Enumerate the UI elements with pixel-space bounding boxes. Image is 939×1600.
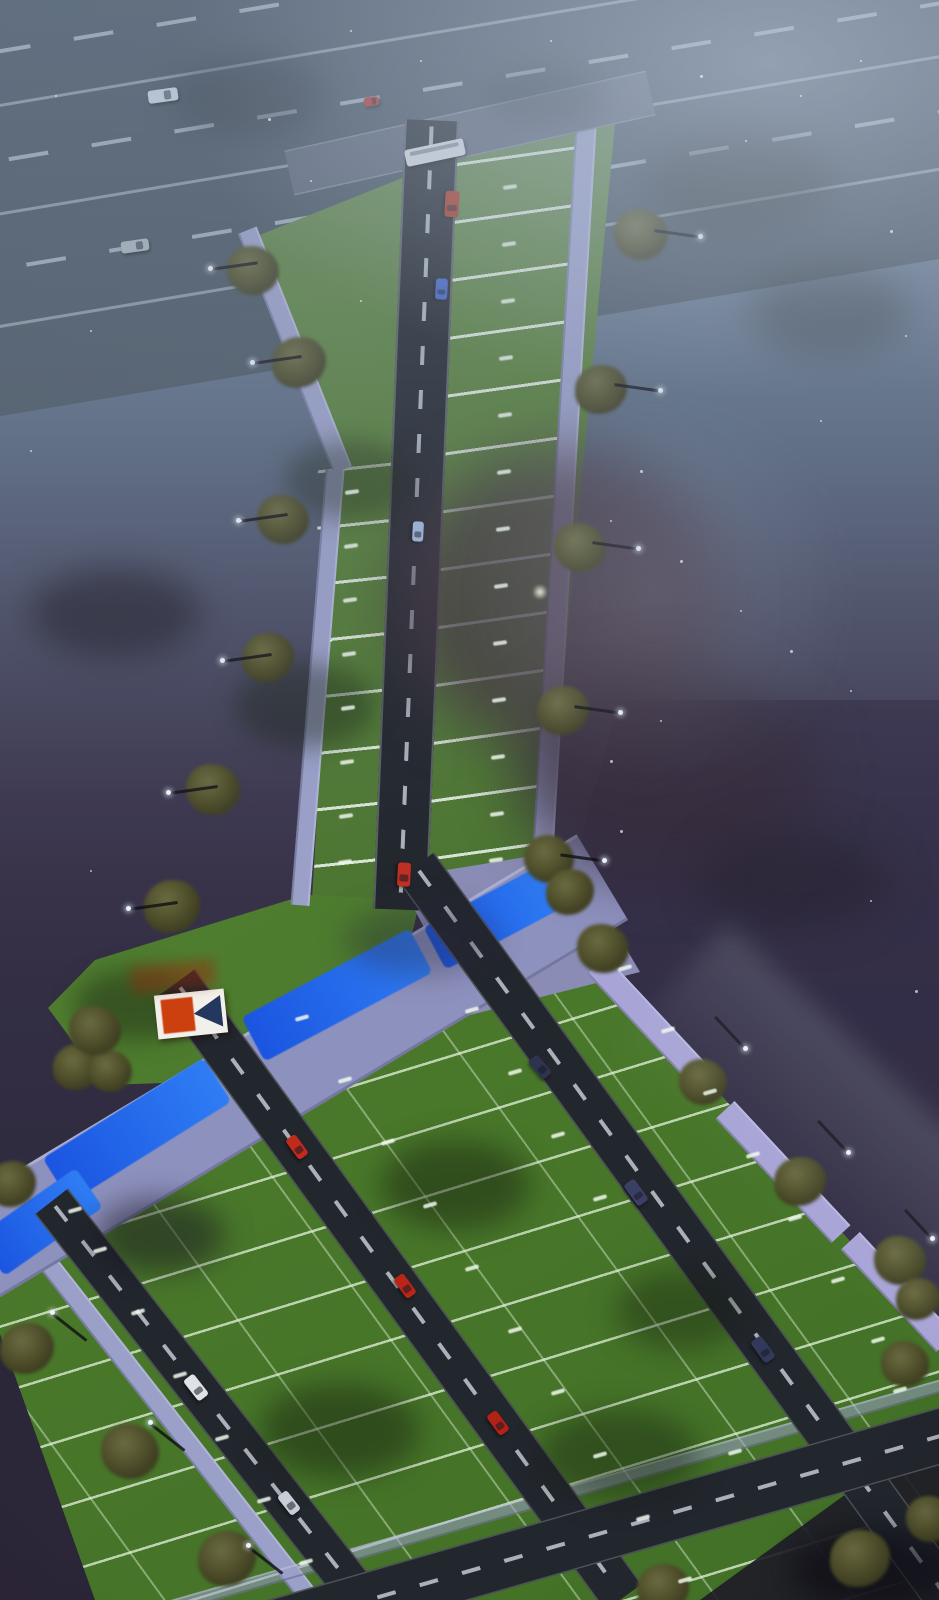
site-plan-render: [0, 0, 939, 1600]
glare-layer: [0, 0, 939, 1600]
glare-vignette: [0, 0, 939, 1600]
